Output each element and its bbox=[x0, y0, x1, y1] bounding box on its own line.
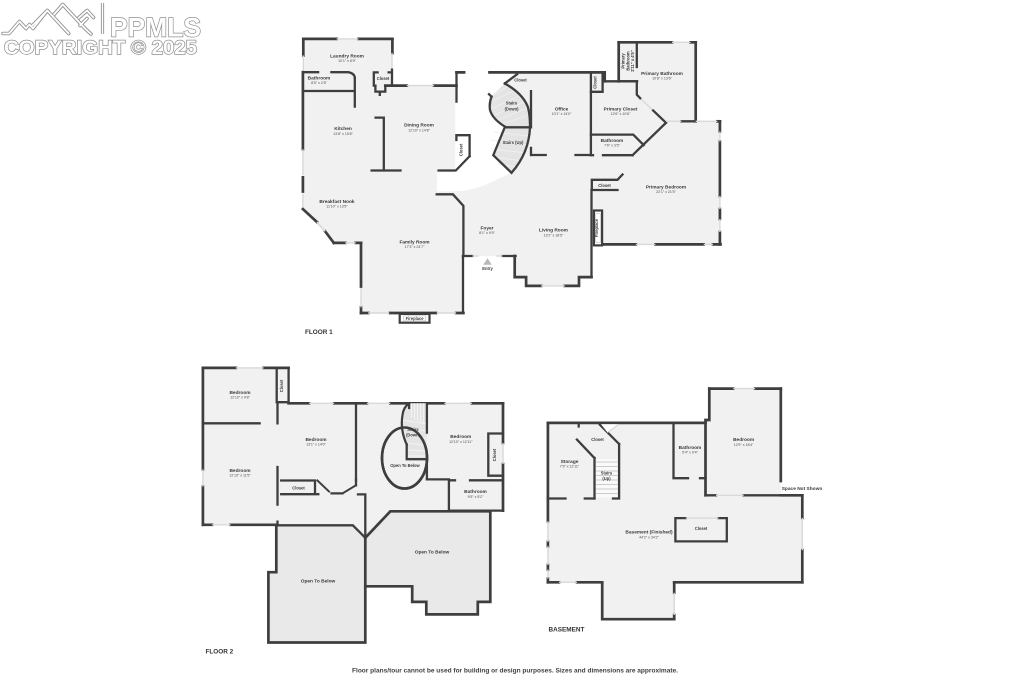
svg-text:12'10" x 12'11": 12'10" x 12'11" bbox=[449, 440, 473, 444]
svg-text:2'11" x 4'5": 2'11" x 4'5" bbox=[630, 50, 635, 72]
svg-text:12'10" x 14'8": 12'10" x 14'8" bbox=[408, 128, 430, 132]
svg-text:COPYRIGHT © 2025: COPYRIGHT © 2025 bbox=[4, 37, 197, 59]
svg-text:Entry: Entry bbox=[482, 266, 493, 271]
svg-text:Floor plans/tour cannot be use: Floor plans/tour cannot be used for buil… bbox=[352, 668, 678, 675]
svg-text:12'6" x 10'6": 12'6" x 10'6" bbox=[611, 112, 631, 116]
svg-text:12'9" x 18'4": 12'9" x 18'4" bbox=[734, 443, 754, 447]
svg-text:Stairs (Up): Stairs (Up) bbox=[503, 140, 524, 145]
svg-text:8'1" x 9'9": 8'1" x 9'9" bbox=[479, 231, 495, 235]
svg-text:Open To Below: Open To Below bbox=[390, 463, 420, 468]
svg-text:FLOOR 1: FLOOR 1 bbox=[305, 329, 333, 336]
svg-text:13'1" x 14'0": 13'1" x 14'0" bbox=[306, 443, 326, 447]
svg-text:Stairs: Stairs bbox=[601, 471, 613, 476]
svg-text:Space Not Shown: Space Not Shown bbox=[782, 486, 823, 492]
svg-text:7'9" x 12'11": 7'9" x 12'11" bbox=[560, 465, 580, 469]
svg-text:Stairs: Stairs bbox=[506, 101, 518, 106]
svg-text:10'8" x 13'6": 10'8" x 13'6" bbox=[652, 77, 672, 81]
svg-text:FLOOR 2: FLOOR 2 bbox=[206, 648, 234, 655]
svg-text:13'2" x 18'5": 13'2" x 18'5" bbox=[544, 233, 564, 237]
svg-text:(Down): (Down) bbox=[505, 106, 520, 111]
svg-text:13'8" x 15'6": 13'8" x 15'6" bbox=[333, 132, 353, 136]
svg-text:22'1" x 21'5": 22'1" x 21'5" bbox=[656, 190, 676, 194]
svg-text:7'6" x 3'5": 7'6" x 3'5" bbox=[604, 144, 620, 148]
svg-text:10'1" x 8'9": 10'1" x 8'9" bbox=[338, 59, 356, 63]
svg-text:Closet: Closet bbox=[492, 448, 497, 461]
svg-text:12'10" x 9'8": 12'10" x 9'8" bbox=[230, 396, 250, 400]
svg-text:12'10" x 11'5": 12'10" x 11'5" bbox=[229, 474, 251, 478]
svg-text:Open To Below: Open To Below bbox=[301, 579, 336, 585]
svg-text:10'1" x 14'0": 10'1" x 14'0" bbox=[552, 112, 572, 116]
svg-text:Closet: Closet bbox=[695, 526, 708, 531]
svg-text:(Up): (Up) bbox=[602, 476, 611, 481]
svg-text:Fireplace: Fireplace bbox=[406, 316, 425, 321]
svg-text:BASEMENT: BASEMENT bbox=[549, 626, 585, 633]
svg-text:11'10" x 13'5": 11'10" x 13'5" bbox=[326, 205, 348, 209]
svg-text:Fireplace: Fireplace bbox=[594, 218, 599, 237]
svg-text:Closet: Closet bbox=[591, 437, 604, 442]
svg-text:Open To Below: Open To Below bbox=[415, 550, 450, 556]
svg-text:17'3" x 24'7": 17'3" x 24'7" bbox=[405, 245, 425, 249]
svg-text:44'2" x 34'2": 44'2" x 34'2" bbox=[639, 536, 659, 540]
svg-text:Closet: Closet bbox=[593, 76, 598, 89]
svg-text:Closet: Closet bbox=[292, 485, 305, 490]
svg-text:Closet: Closet bbox=[377, 76, 390, 81]
svg-text:9'5" x 5'2": 9'5" x 5'2" bbox=[468, 495, 484, 499]
svg-text:8'5" x 2'8": 8'5" x 2'8" bbox=[311, 81, 327, 85]
svg-text:Closet: Closet bbox=[514, 77, 527, 82]
svg-text:Closet: Closet bbox=[459, 143, 464, 156]
svg-text:5'4" x 9'4": 5'4" x 9'4" bbox=[682, 451, 698, 455]
svg-text:(Down): (Down) bbox=[406, 432, 421, 437]
svg-text:Closet: Closet bbox=[279, 379, 284, 392]
svg-text:Closet: Closet bbox=[598, 183, 611, 188]
svg-text:Stairs: Stairs bbox=[407, 427, 419, 432]
